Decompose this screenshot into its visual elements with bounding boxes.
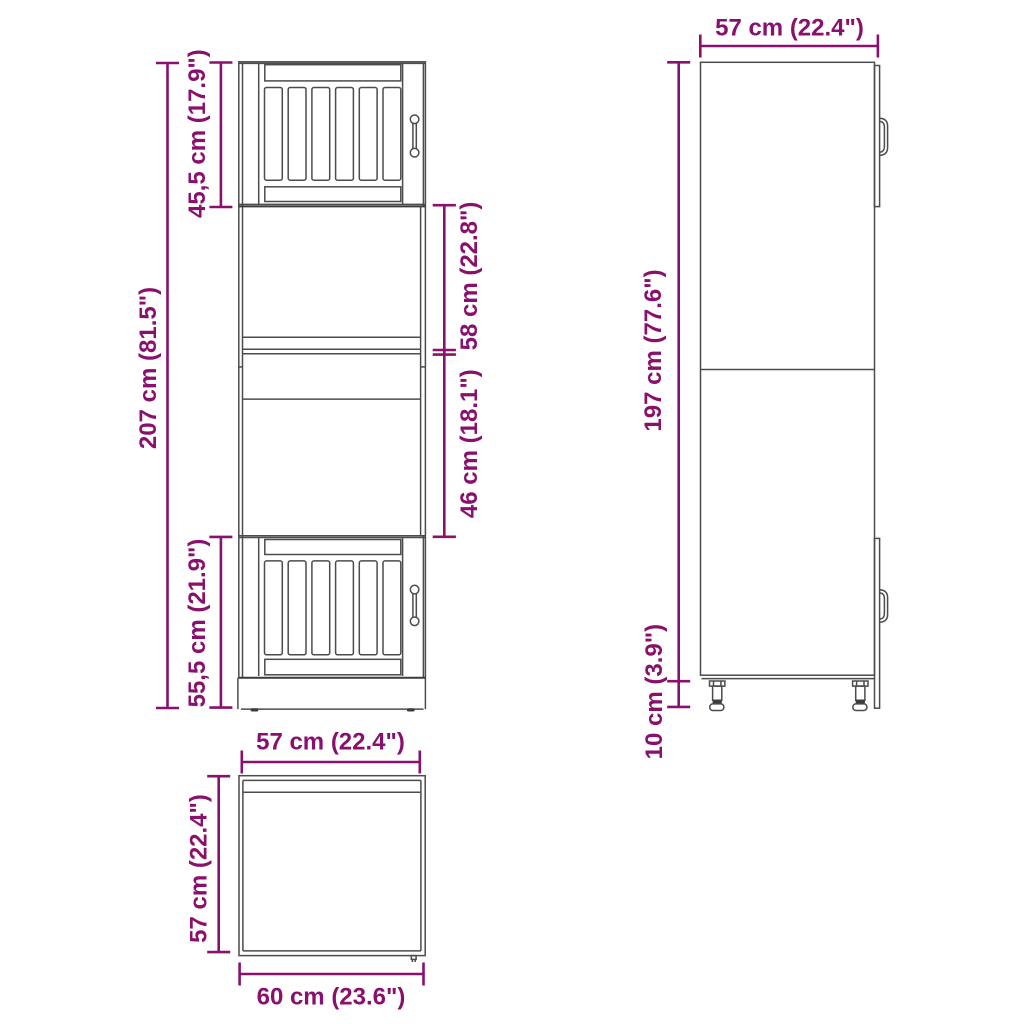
svg-text:57 cm (22.4"): 57 cm (22.4")	[186, 794, 213, 943]
svg-text:57 cm (22.4"): 57 cm (22.4")	[256, 729, 405, 756]
svg-text:60 cm (23.6"): 60 cm (23.6")	[257, 984, 406, 1011]
svg-text:55,5 cm (21.9"): 55,5 cm (21.9")	[184, 539, 211, 708]
svg-text:10 cm (3.9"): 10 cm (3.9")	[641, 624, 668, 759]
svg-text:58 cm (22.8"): 58 cm (22.8")	[456, 202, 483, 351]
svg-text:46 cm (18.1"): 46 cm (18.1")	[456, 369, 483, 518]
svg-text:57 cm (22.4"): 57 cm (22.4")	[715, 14, 864, 41]
svg-text:197 cm (77.6"): 197 cm (77.6")	[640, 269, 667, 431]
svg-text:45,5 cm (17.9"): 45,5 cm (17.9")	[184, 49, 211, 218]
svg-text:207 cm (81.5"): 207 cm (81.5")	[135, 287, 162, 449]
